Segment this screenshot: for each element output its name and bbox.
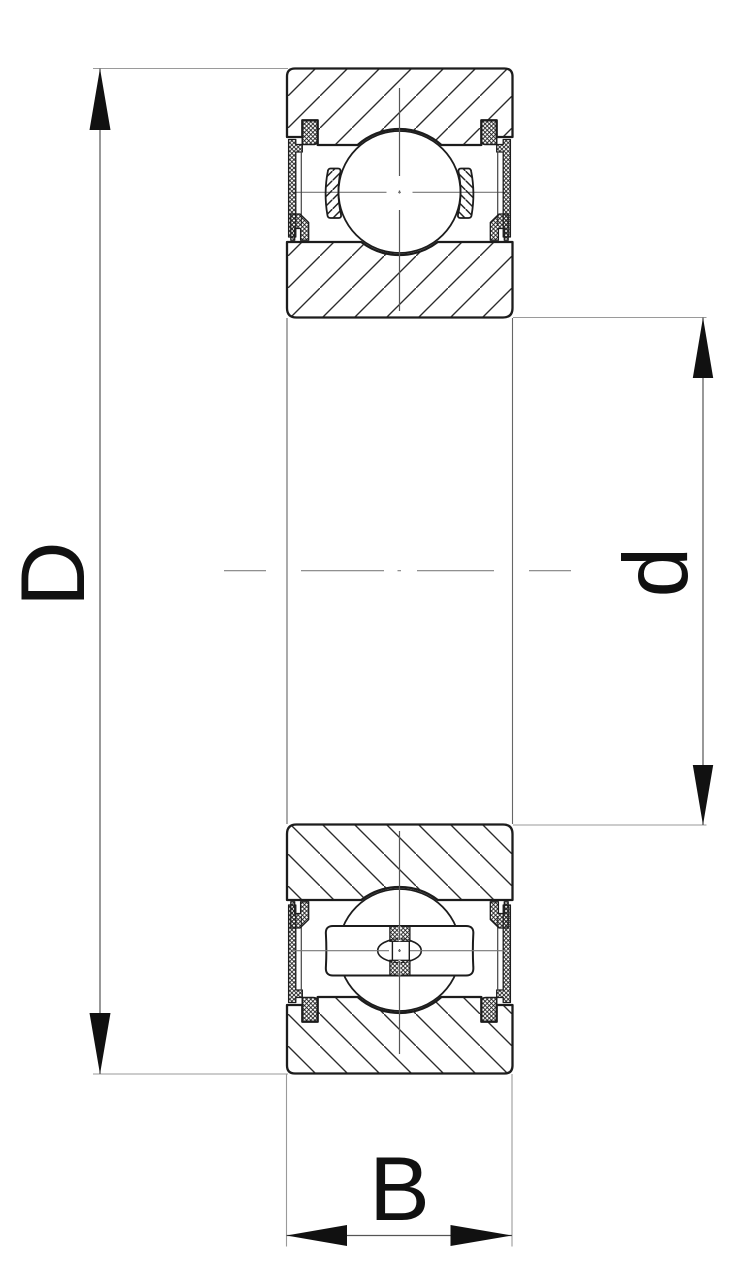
- svg-text:D: D: [3, 541, 104, 607]
- svg-text:d: d: [606, 547, 707, 598]
- svg-text:B: B: [369, 1139, 430, 1240]
